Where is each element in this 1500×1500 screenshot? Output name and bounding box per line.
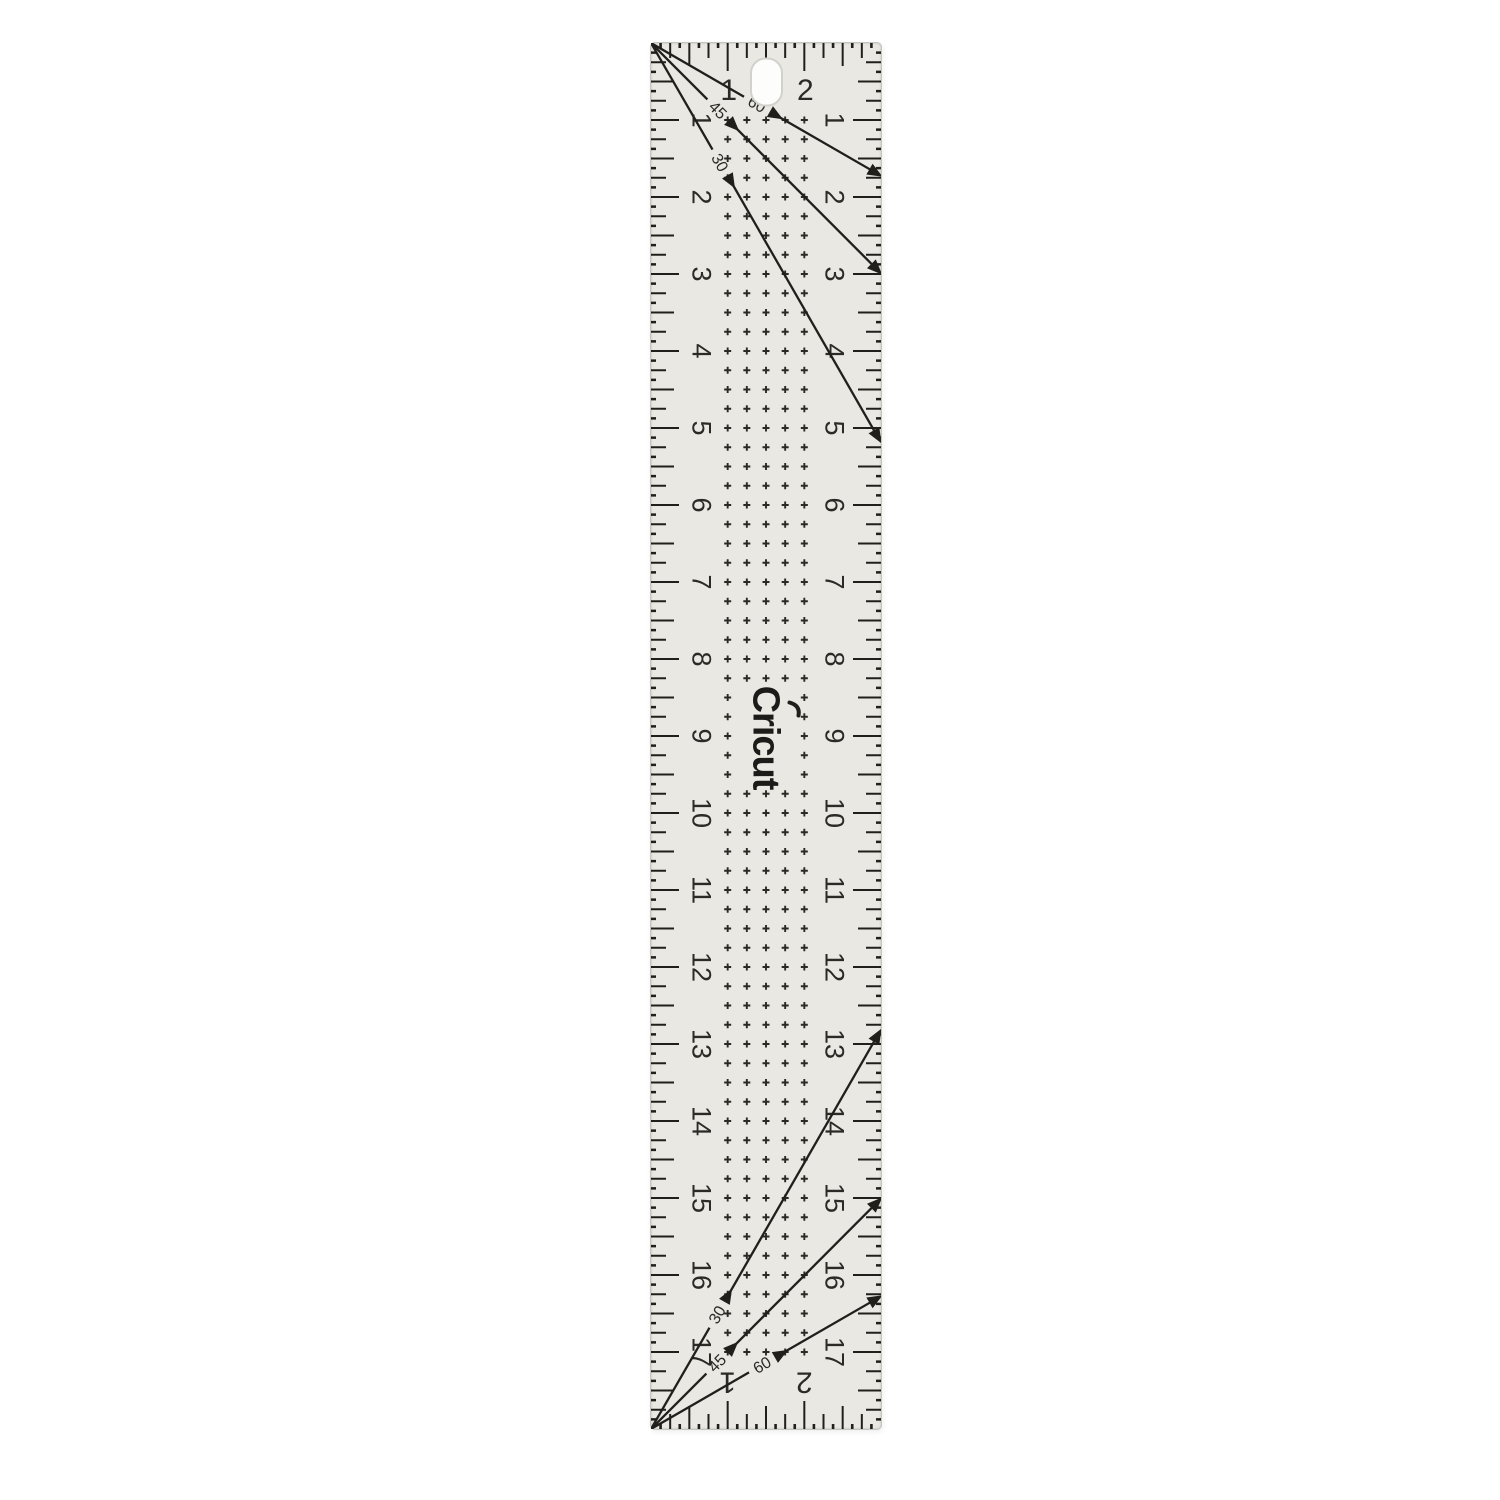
inch-number: 2 — [820, 189, 850, 204]
angle-label: 30 — [706, 1303, 730, 1327]
inch-number: 5 — [820, 420, 850, 435]
hanging-hole — [751, 59, 782, 106]
brand-logo: Cricut — [745, 686, 799, 791]
angle-label: 30 — [707, 151, 731, 175]
photo-canvas: 1234567891011121314151617123456789101112… — [0, 0, 1500, 1500]
inch-number: 2 — [687, 189, 717, 204]
inch-number: 7 — [820, 574, 850, 589]
product-photo-page: { "background_color": "#ffffff", "brand"… — [0, 0, 1500, 1500]
width-number: 2 — [797, 74, 814, 107]
inch-number: 11 — [820, 876, 850, 904]
ruler-markings: 1234567891011121314151617123456789101112… — [651, 43, 881, 1429]
inch-number: 10 — [820, 798, 850, 828]
inch-number: 17 — [820, 1337, 850, 1367]
width-number: 2 — [796, 1366, 813, 1399]
right-scale-ticks — [853, 53, 881, 1420]
inch-number: 8 — [687, 651, 717, 666]
inch-number: 9 — [820, 728, 850, 743]
inch-number: 3 — [820, 266, 850, 281]
right-scale-numbers: 1234567891011121314151617 — [820, 112, 850, 1367]
inch-number: 10 — [687, 798, 717, 828]
inch-number: 16 — [820, 1260, 850, 1290]
logo-horn-icon — [790, 703, 799, 716]
inch-number: 13 — [687, 1029, 717, 1059]
cricut-18in-quilting-ruler: 1234567891011121314151617123456789101112… — [650, 42, 882, 1430]
inch-number: 9 — [687, 728, 717, 743]
inch-number: 12 — [687, 952, 717, 982]
inch-number: 13 — [820, 1029, 850, 1059]
angle-label: 60 — [751, 1354, 775, 1378]
left-scale-numbers: 1234567891011121314151617 — [687, 112, 717, 1367]
inch-number: 5 — [687, 420, 717, 435]
logo-text: Cricut — [745, 686, 787, 791]
inch-number: 6 — [820, 497, 850, 512]
inch-number: 15 — [820, 1183, 850, 1213]
inch-number: 7 — [687, 574, 717, 589]
inch-number: 14 — [687, 1106, 717, 1136]
inch-number: 6 — [687, 497, 717, 512]
inch-number: 1 — [820, 112, 850, 127]
inch-number: 4 — [687, 343, 717, 358]
inch-number: 12 — [820, 952, 850, 982]
inch-number: 3 — [687, 266, 717, 281]
inch-number: 11 — [687, 876, 717, 904]
left-scale-ticks — [651, 53, 679, 1420]
inch-number: 8 — [820, 651, 850, 666]
inch-number: 16 — [687, 1260, 717, 1290]
inch-number: 15 — [687, 1183, 717, 1213]
